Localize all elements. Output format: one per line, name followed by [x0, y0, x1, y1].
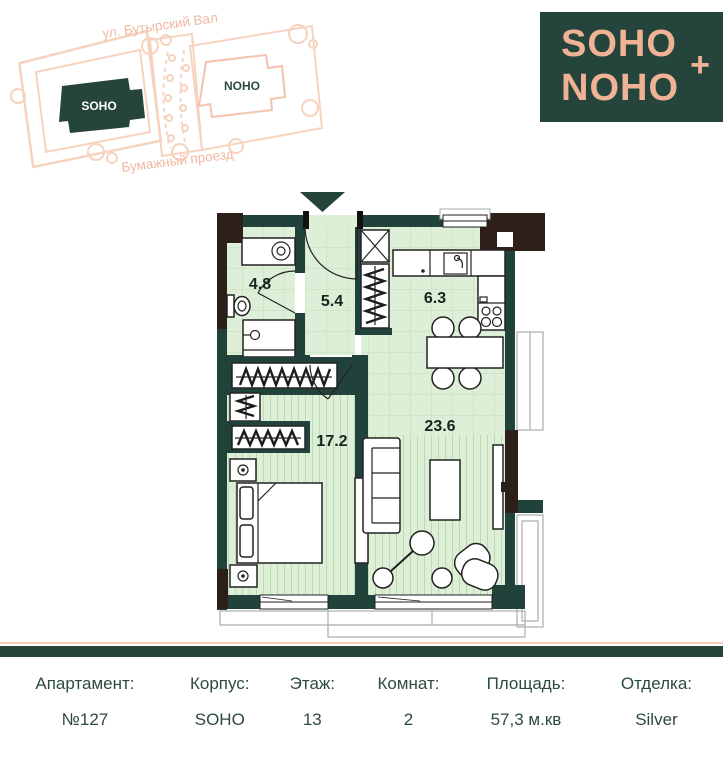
brand-logo: SOHO NOHO +: [540, 12, 723, 122]
info-col-apartment: Апартамент: №127: [0, 660, 170, 730]
dining-chair: [459, 317, 481, 339]
info-col-finish: Отделка: Silver: [590, 660, 723, 730]
divider-teal: [0, 646, 723, 657]
dining-table: [427, 337, 503, 368]
info-label: Корпус:: [170, 674, 270, 694]
site-map-noho-label: NOHO: [224, 79, 260, 93]
info-value: SOHO: [170, 710, 270, 730]
info-value: 13: [270, 710, 355, 730]
info-label: Отделка:: [590, 674, 723, 694]
info-col-floor: Этаж: 13: [270, 660, 355, 730]
shower: [243, 320, 295, 357]
room-label-bedroom: 17.2: [316, 433, 347, 450]
hallway-floor: [305, 227, 355, 355]
street-name-top: ул. Бутырский Вал: [101, 10, 218, 41]
pillow: [240, 525, 253, 557]
pillow: [240, 487, 253, 519]
entrance-arrow-icon: [300, 192, 345, 212]
street-name-bottom: Бумажный проезд: [121, 146, 235, 175]
site-map-building-soho[interactable]: SOHO: [59, 78, 145, 133]
divider-peach: [0, 642, 723, 644]
kitchen-counter: [393, 250, 505, 276]
site-map-building-noho[interactable]: NOHO: [199, 55, 285, 117]
floor-plan: 4.8 5.4 6.3 17.2 23.6: [180, 185, 570, 650]
info-value: 2: [355, 710, 462, 730]
info-label: Комнат:: [355, 674, 462, 694]
dining-chair: [432, 367, 454, 389]
logo-plus-icon: +: [690, 48, 710, 82]
info-value: Silver: [590, 710, 723, 730]
toilet: [227, 295, 234, 317]
info-value: №127: [0, 710, 170, 730]
shelf-unit: [230, 393, 260, 421]
room-label-bathroom: 4.8: [249, 276, 271, 293]
dining-chair: [459, 367, 481, 389]
info-label: Площадь:: [462, 674, 590, 694]
info-label: Этаж:: [270, 674, 355, 694]
info-col-area: Площадь: 57,3 м.кв: [462, 660, 590, 730]
site-map: SOHO NOHO ул. Бутырский Вал Бумажный про…: [0, 0, 330, 190]
info-value: 57,3 м.кв: [462, 710, 590, 730]
side-table: [432, 568, 452, 588]
info-col-building: Корпус: SOHO: [170, 660, 270, 730]
coffee-table: [430, 460, 460, 520]
dining-chair: [432, 317, 454, 339]
info-col-rooms: Комнат: 2: [355, 660, 462, 730]
info-label: Апартамент:: [0, 674, 170, 694]
floor-lamp: [410, 531, 434, 555]
apartment-info-table: Апартамент: №127 Корпус: SOHO Этаж: 13 К…: [0, 660, 723, 730]
site-map-soho-label: SOHO: [81, 99, 116, 113]
washing-machine: [242, 238, 295, 265]
room-label-kitchen: 6.3: [424, 290, 446, 307]
room-label-living-room: 23.6: [424, 418, 455, 435]
sofa: [363, 438, 400, 533]
room-label-hallway: 5.4: [321, 293, 343, 310]
